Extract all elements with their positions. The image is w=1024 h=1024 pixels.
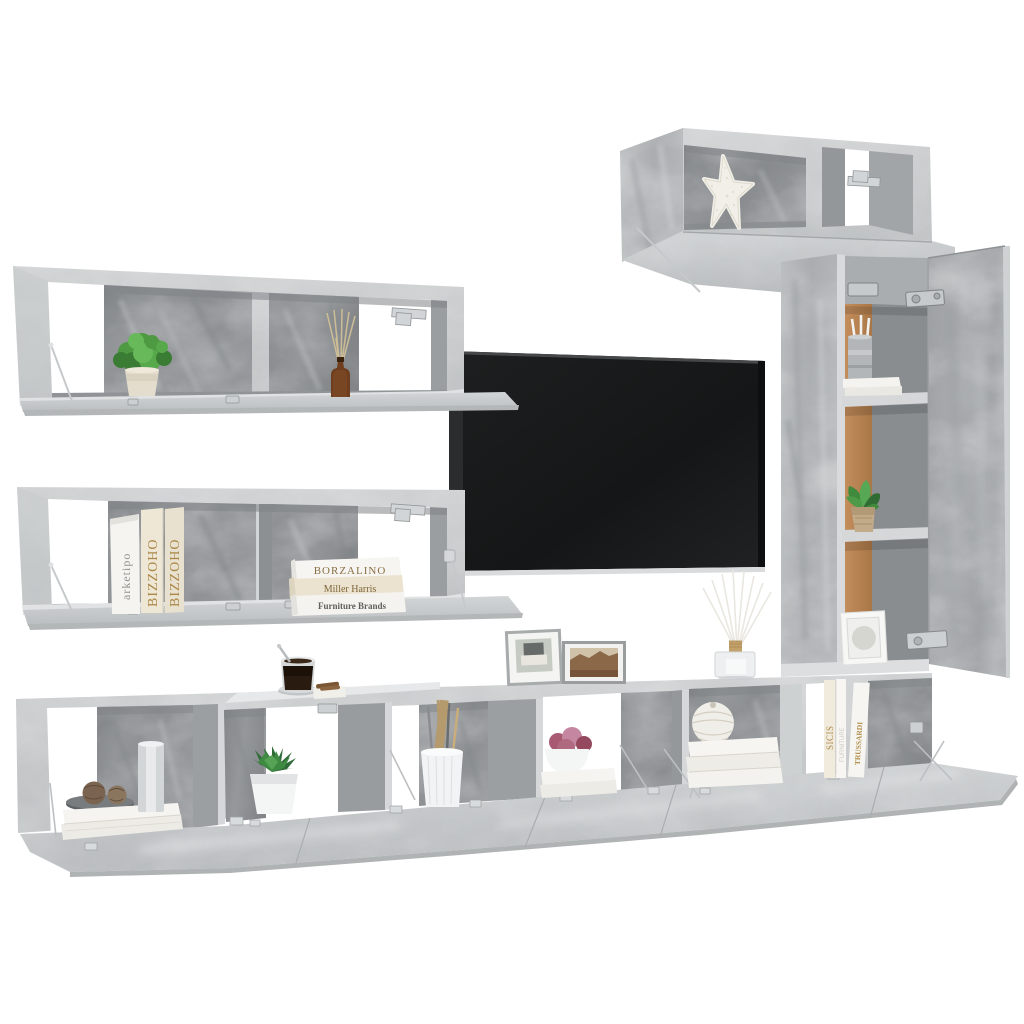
svg-text:BIZZOHO: BIZZOHO [168, 539, 183, 607]
svg-text:arketipo: arketipo [119, 553, 133, 600]
svg-text:BIZZOHO: BIZZOHO [146, 539, 161, 607]
svg-text:FURNITURE: FURNITURE [840, 727, 846, 762]
svg-text:Furniture Brands: Furniture Brands [318, 601, 387, 611]
svg-text:SICIS: SICIS [825, 725, 835, 750]
svg-text:BORZALINO: BORZALINO [314, 565, 387, 577]
